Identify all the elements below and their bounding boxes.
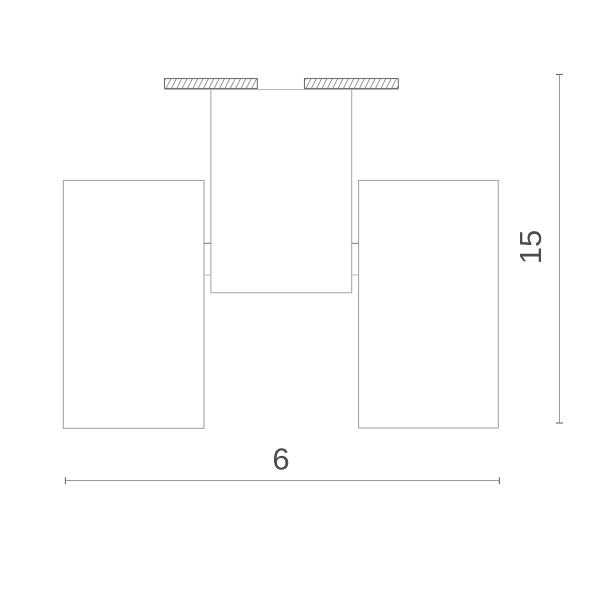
svg-text:15: 15	[513, 230, 548, 264]
svg-text:6: 6	[272, 442, 289, 477]
